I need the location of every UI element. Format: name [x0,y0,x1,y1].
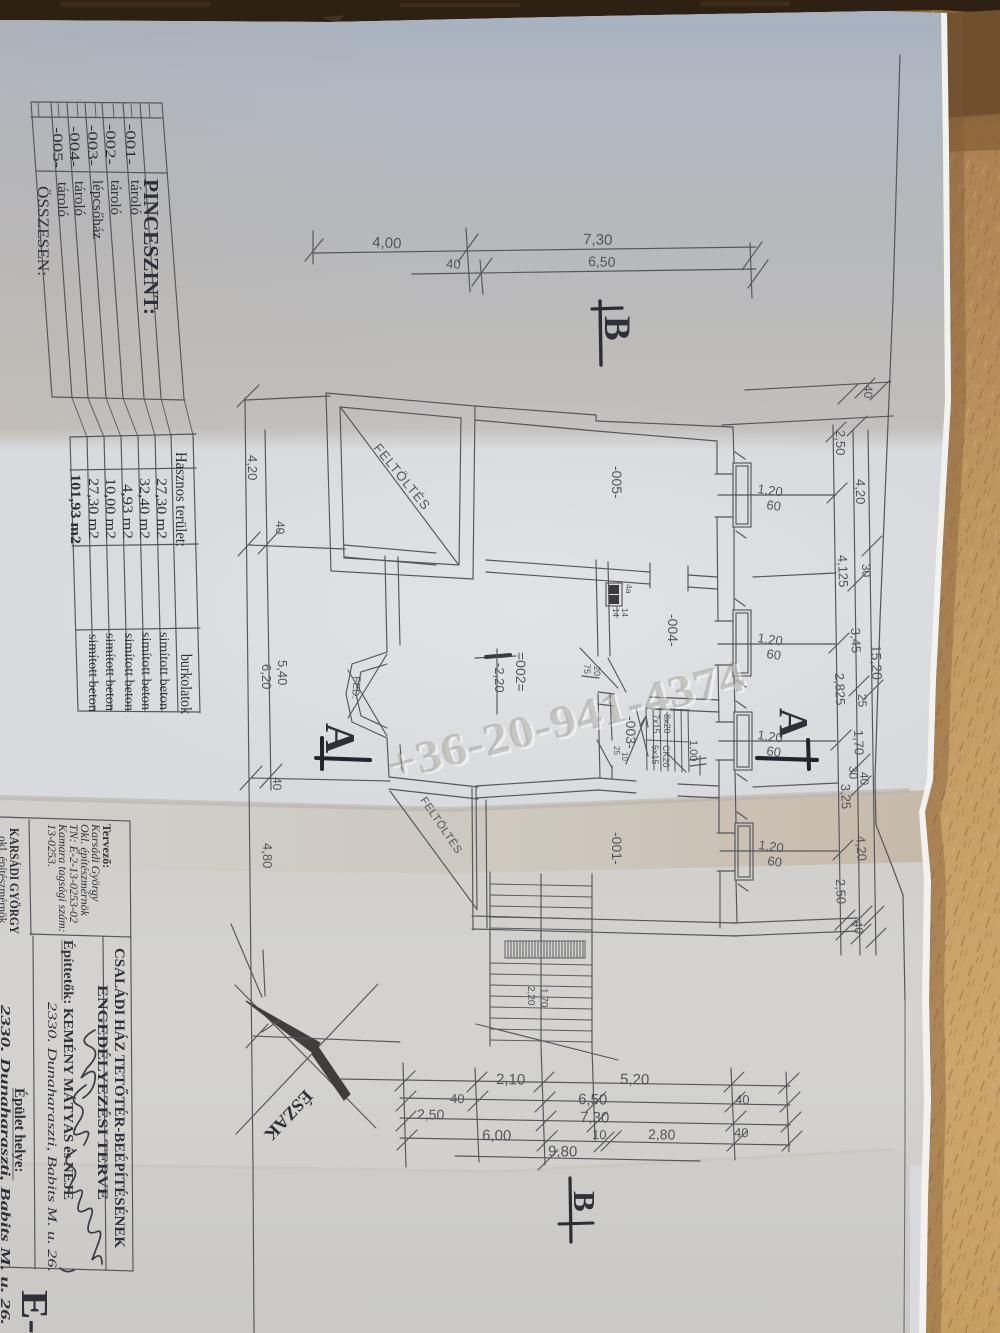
svg-text:27,30 m2: 27,30 m2 [153,478,169,539]
svg-text:simított beton: simított beton [102,633,117,711]
svg-text:tároló: tároló [127,180,143,215]
svg-text:2330. Dunaharaszti, Babits M.: 2330. Dunaharaszti, Babits M. u. 26. [0,1003,13,1325]
svg-text:27,30 m2: 27,30 m2 [85,478,101,539]
svg-text:tároló: tároló [54,182,70,217]
svg-text:10: 10 [592,1127,607,1142]
svg-text:-004-: -004- [66,126,82,167]
svg-text:14: 14 [620,608,629,617]
svg-text:2,50: 2,50 [417,1106,445,1122]
svg-text:simított beton: simított beton [121,633,136,711]
svg-text:6,20: 6,20 [259,664,274,689]
svg-text:10: 10 [620,752,629,761]
svg-text:ÖSSZESEN:: ÖSSZESEN: [34,186,52,276]
svg-text:4,93 m2: 4,93 m2 [119,484,135,539]
svg-text:okl. építészmérnök: okl. építészmérnök [0,836,8,924]
svg-text:30: 30 [859,564,873,578]
svg-text:40: 40 [450,1091,465,1106]
svg-text:ENGEDÉLYEZÉSI TERVE: ENGEDÉLYEZÉSI TERVE [94,985,111,1200]
svg-text:4,00: 4,00 [372,234,402,253]
svg-text:15,20: 15,20 [868,645,885,681]
svg-text:tároló: tároló [107,180,123,215]
svg-text:1,70: 1,70 [851,730,867,756]
svg-text:40: 40 [861,385,875,399]
svg-text:-005-: -005- [49,127,65,168]
svg-text:A: A [771,708,817,738]
svg-text:2,50: 2,50 [833,879,849,905]
svg-text:13-0253.: 13-0253. [45,824,59,867]
svg-text:1,00: 1,00 [687,740,699,761]
svg-text:2,80: 2,80 [648,1126,676,1142]
svg-text:60: 60 [767,853,783,870]
svg-text:4,80: 4,80 [260,843,275,868]
svg-text:5,40: 5,40 [275,660,290,685]
svg-text:7,30: 7,30 [580,1109,609,1127]
svg-text:9,80: 9,80 [548,1143,577,1161]
svg-text:6,50: 6,50 [578,1091,607,1109]
svg-text:simított beton: simított beton [156,632,171,710]
svg-text:4,125: 4,125 [835,555,851,588]
svg-text:101,93 m2: 101,93 m2 [67,474,83,544]
svg-text:CK20: CK20 [661,745,671,768]
svg-text:-005-: -005- [609,466,625,499]
svg-text:5x15: 5x15 [650,745,660,765]
svg-text:2,10: 2,10 [496,1071,525,1089]
svg-text:40: 40 [273,521,287,535]
svg-text:tároló: tároló [71,181,87,216]
svg-text:-001-: -001- [122,124,138,165]
svg-text:5,20: 5,20 [620,1071,649,1089]
svg-text:2,825: 2,825 [832,673,848,706]
svg-text:3,45: 3,45 [848,628,864,654]
svg-text:60: 60 [766,497,782,514]
svg-text:lépcsőház: lépcsőház [89,180,105,239]
svg-text:-001-: -001- [609,832,625,865]
svg-text:CSALÁDI HÁZ TETŐTÉR-BEÉPÍTÉSÉN: CSALÁDI HÁZ TETŐTÉR-BEÉPÍTÉSÉNEK [111,948,128,1248]
svg-text:2330. Dunaharaszti, Babits M.: 2330. Dunaharaszti, Babits M. u. 26. [45,1002,60,1272]
svg-text:-2,20: -2,20 [492,663,507,693]
svg-text:4a: 4a [624,584,634,594]
svg-text:40: 40 [446,256,461,272]
svg-text:KARSÁDI GYÖRGY: KARSÁDI GYÖRGY [7,828,22,935]
svg-text:6,50: 6,50 [588,253,616,270]
svg-text:-003-: -003- [84,125,100,166]
svg-text:40: 40 [857,772,871,786]
svg-text:6,00: 6,00 [482,1127,511,1145]
svg-text:25: 25 [612,746,621,755]
svg-text:10,00 m2: 10,00 m2 [102,478,118,539]
svg-text:FED.: FED. [349,676,362,700]
svg-text:burkolatok: burkolatok [177,654,194,714]
svg-text:40: 40 [851,920,866,935]
svg-text:14: 14 [611,608,620,617]
svg-text:2,50: 2,50 [833,430,848,455]
svg-text:B: B [567,1191,602,1212]
svg-text:2,20: 2,20 [525,986,536,1006]
svg-text:3,25: 3,25 [838,784,854,810]
svg-text:-004-: -004- [665,614,681,647]
svg-text:60: 60 [766,646,782,663]
svg-text:20: 20 [592,666,602,676]
svg-text:75: 75 [582,664,592,674]
svg-text:E-: E- [13,1290,55,1333]
svg-text:4,20: 4,20 [245,455,260,480]
svg-text:4,20: 4,20 [853,835,870,861]
svg-text:-002-: -002- [102,124,118,165]
svg-text:simított beton: simított beton [85,634,100,712]
svg-text:Hasznos terület:: Hasznos terület: [172,452,189,547]
svg-text:1,70: 1,70 [538,988,549,1008]
svg-text:32,40 m2: 32,40 m2 [136,478,152,539]
svg-text:=002=: =002= [513,652,529,692]
svg-text:Építtetők: KEMÉNY MÁTYÁS és NE: Építtetők: KEMÉNY MÁTYÁS és NEJE [61,940,76,1200]
svg-text:7,30: 7,30 [583,231,613,249]
svg-text:40: 40 [735,1092,750,1107]
svg-text:40: 40 [734,1125,749,1140]
svg-text:25: 25 [855,694,869,708]
svg-text:4,20: 4,20 [853,479,868,504]
svg-text:40: 40 [270,777,284,791]
svg-text:simított beton: simított beton [138,632,153,710]
